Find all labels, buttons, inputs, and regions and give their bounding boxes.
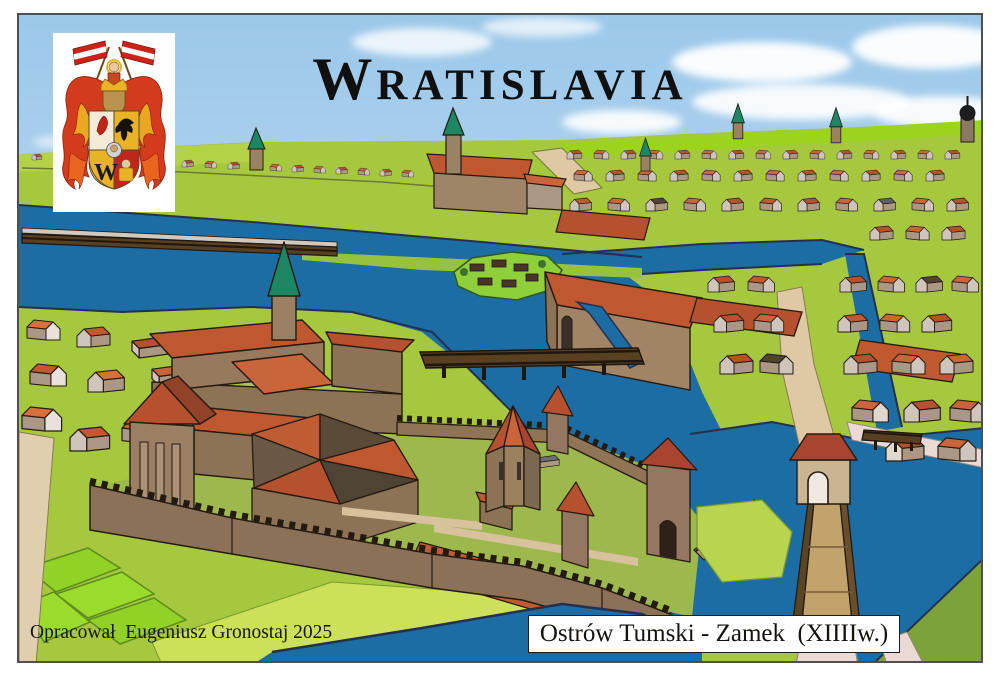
- house: [950, 400, 983, 422]
- wroclaw-coat-of-arms: W: [53, 33, 175, 212]
- postcard: W WRATISLAVIA Opracował Eugeniusz Gronos…: [0, 0, 1000, 677]
- caption-box: Ostrów Tumski - Zamek (XIIIIw.): [528, 615, 900, 653]
- caption-text: Ostrów Tumski - Zamek (XIIIIw.): [540, 620, 888, 648]
- coa-monogram: W: [94, 160, 118, 186]
- title-initial: W: [312, 46, 376, 112]
- attribution-text: Opracował Eugeniusz Gronostaj 2025: [30, 622, 332, 644]
- title-rest: RATISLAVIA: [376, 62, 687, 109]
- coa-shield: W: [89, 111, 139, 189]
- bridge-gate-tower: [790, 434, 857, 504]
